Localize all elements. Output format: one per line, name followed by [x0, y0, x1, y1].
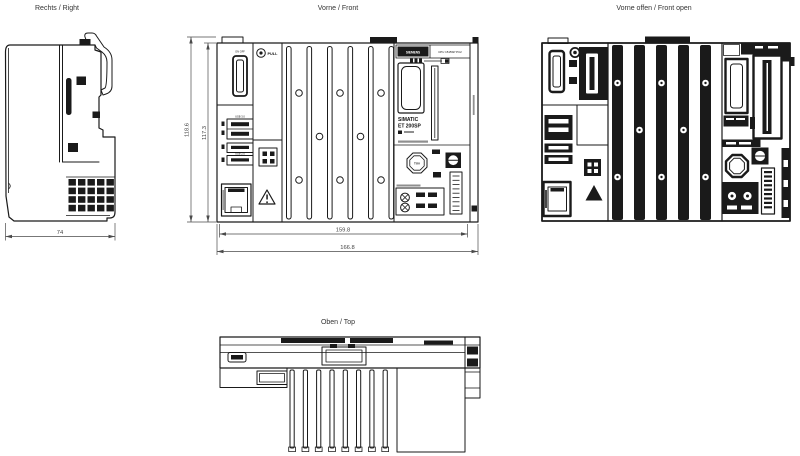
svg-text:SIEMENS: SIEMENS	[406, 51, 420, 55]
on-off-label: ON OFF	[235, 50, 245, 54]
front-open-view-drawing	[542, 37, 795, 222]
front-view: Vorne / Front ON OFF PULL USB 3.0	[6, 5, 479, 255]
fin-clips	[296, 90, 385, 184]
family-label: ET 200SP	[398, 124, 421, 130]
dimension-drawing-canvas: Rechts / Right 7	[0, 0, 800, 456]
top-view-drawing	[220, 337, 480, 452]
top-vent-bar	[370, 37, 397, 43]
front-open-view-title: Vorne offen / Front open	[616, 5, 691, 12]
dimension-drawing-page: Rechts / Right 7	[0, 0, 800, 456]
side-imprint-text	[473, 95, 475, 115]
memory-dots-icon	[584, 159, 601, 176]
top-tab	[222, 37, 243, 43]
dimension-label-overall-width: 166.8	[340, 245, 355, 251]
memory-card-slot	[726, 59, 748, 113]
right-view-depth-dimension: 74	[6, 223, 116, 241]
side-vent-slot	[66, 78, 72, 115]
svg-text:TÜV: TÜV	[414, 160, 420, 165]
simatic-label: SIMATIC	[398, 117, 419, 123]
displayport-connector	[233, 56, 247, 96]
heatsink-fins	[287, 47, 394, 220]
usb3-label: USB 3.0	[235, 115, 245, 119]
heatsink-fins	[612, 45, 711, 220]
displayport-connector	[550, 51, 565, 92]
article-number-text	[398, 141, 428, 143]
small-print	[404, 131, 414, 133]
right-view: Rechts / Right 7	[6, 5, 116, 241]
front-view-drawing: ON OFF PULL USB 3.0 USB 2.0	[217, 37, 479, 222]
dimension-label-body-height: 117.3	[202, 126, 208, 140]
pull-label: PULL	[268, 52, 279, 56]
top-view: Oben / Top	[220, 319, 480, 452]
housing-outline	[6, 45, 116, 221]
nameplate-row	[741, 44, 788, 55]
model-label: CPU 1515SP PC2	[438, 50, 462, 54]
warning-triangle-icon	[586, 185, 603, 201]
port-label-text	[223, 190, 224, 210]
heatsink-fins-top	[289, 370, 389, 452]
dimension-label-overall-height: 118.6	[185, 123, 191, 137]
top-latch	[80, 39, 91, 45]
dimension-label-depth: 74	[57, 230, 64, 236]
right-view-drawing	[6, 33, 116, 221]
terminal-grid	[69, 179, 114, 211]
top-view-title: Oben / Top	[321, 319, 355, 326]
fan-housing	[397, 368, 465, 452]
front-view-title: Vorne / Front	[318, 5, 359, 12]
terminal-label-text	[397, 185, 421, 187]
front-open-view: Vorne offen / Front open	[542, 5, 795, 221]
right-view-title: Rechts / Right	[35, 5, 79, 12]
dimension-label-body-width: 159.8	[336, 228, 351, 234]
top-vent-bar	[645, 37, 690, 44]
